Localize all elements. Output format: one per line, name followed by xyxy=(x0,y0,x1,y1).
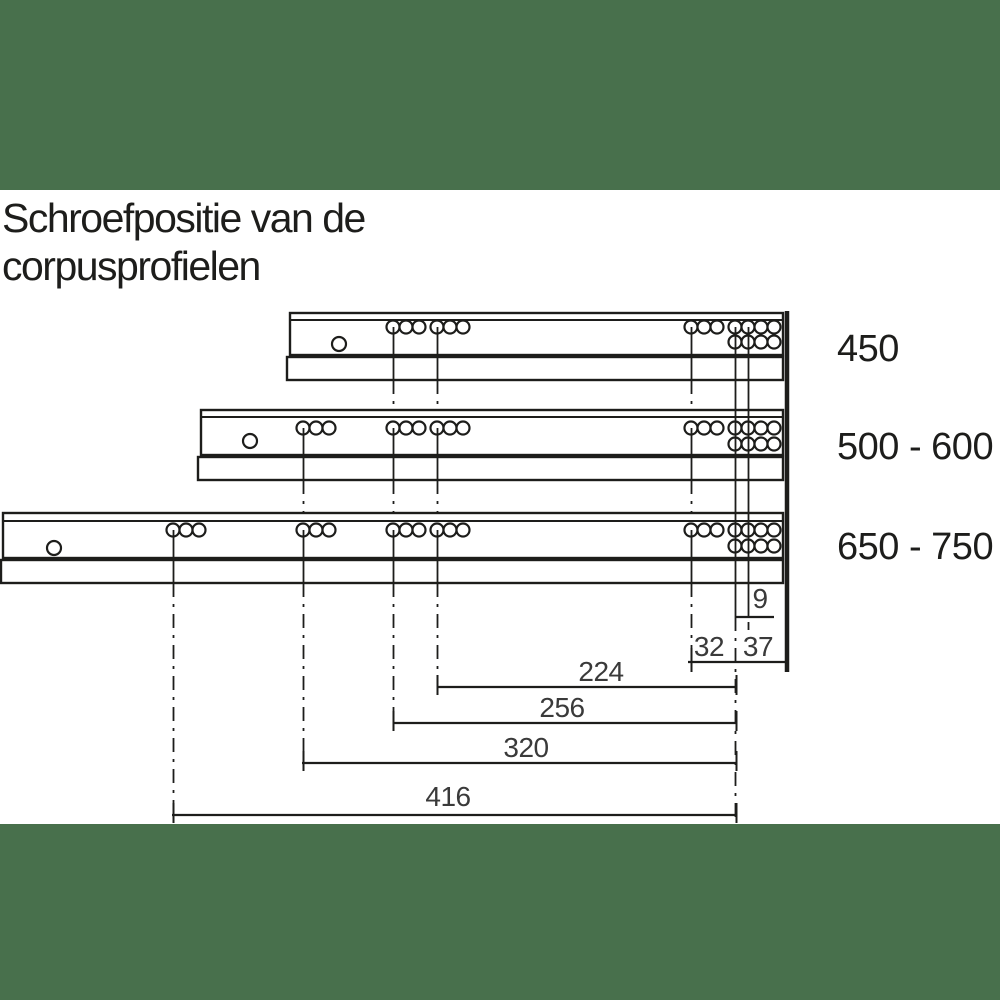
diagram-title-line1: Schroefpositie van de xyxy=(2,195,365,241)
dim-label-32: 32 xyxy=(694,631,724,662)
pilot-hole xyxy=(332,337,346,351)
pilot-hole xyxy=(47,541,61,555)
profile-length-label-450: 450 xyxy=(837,328,899,370)
screw-position-diagram: Schroefpositie van de corpusprofielen xyxy=(0,0,1000,1000)
diagram-title-line2: corpusprofielen xyxy=(2,243,260,289)
profile-500-600 xyxy=(198,410,783,480)
dim-label-224: 224 xyxy=(578,656,623,687)
dim-label-37: 37 xyxy=(743,631,773,662)
pilot-hole xyxy=(243,434,257,448)
dim-label-416: 416 xyxy=(425,781,470,812)
screenshot-stage: Schroefpositie van de corpusprofielen xyxy=(0,0,1000,1000)
dim-label-320: 320 xyxy=(503,732,548,763)
profile-length-label-500-600: 500 - 600 xyxy=(837,426,993,468)
bottom-green-band xyxy=(0,824,1000,1000)
dim-label-256: 256 xyxy=(539,692,584,723)
profile-650-750 xyxy=(1,513,783,583)
dim-label-9: 9 xyxy=(752,583,767,614)
top-green-band xyxy=(0,0,1000,190)
profile-450 xyxy=(287,313,783,380)
profile-length-label-650-750: 650 - 750 xyxy=(837,526,993,568)
